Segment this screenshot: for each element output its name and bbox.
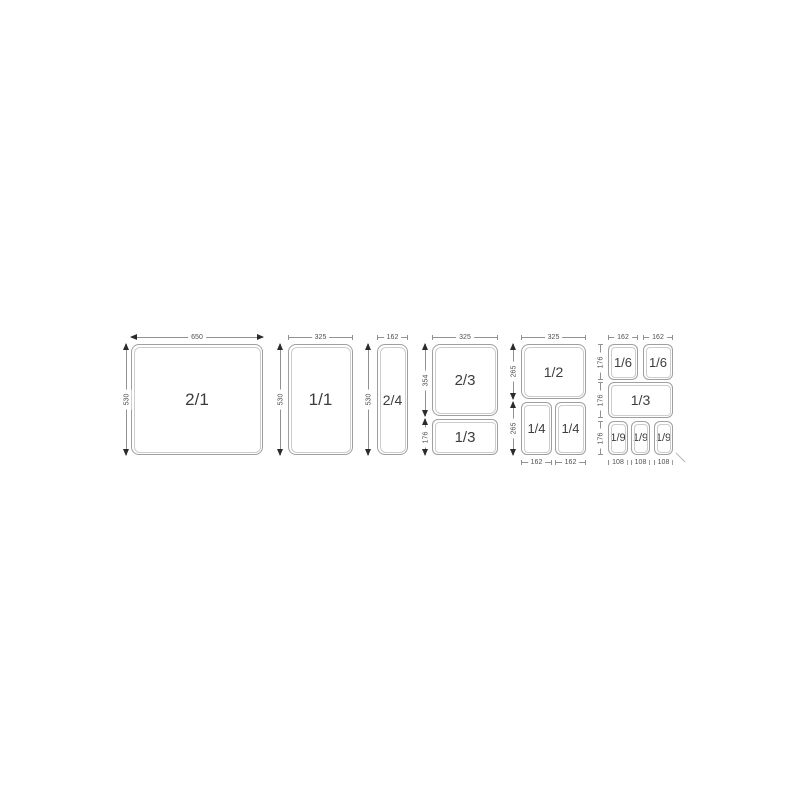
dim-label: 530 — [276, 390, 285, 410]
arrow-up-icon — [422, 418, 428, 425]
dim-tick — [598, 421, 603, 422]
arrow-down-icon — [422, 410, 428, 417]
dim-tick — [643, 335, 644, 340]
dim-label: 530 — [122, 390, 131, 410]
dim-label: 108 — [609, 459, 627, 467]
dim-width-108-a: 108 — [608, 462, 628, 463]
pan-1-1: 1/1 — [288, 344, 353, 455]
dim-label: 108 — [632, 459, 650, 467]
dim-height-265-b: 265 — [513, 402, 514, 455]
arrow-up-icon — [422, 343, 428, 350]
dim-width-162-g6a: 162 — [608, 337, 638, 338]
pan-2-1: 2/1 — [131, 344, 263, 455]
pan-label: 1/3 — [631, 392, 650, 408]
pan-label: 1/4 — [527, 421, 545, 436]
pan-label: 1/2 — [544, 364, 563, 380]
dim-tick — [497, 335, 498, 340]
pan-label: 1/4 — [561, 421, 579, 436]
pan-label: 1/6 — [614, 355, 632, 370]
dim-label: 176 — [596, 390, 605, 410]
dim-tick — [352, 335, 353, 340]
pan-1-6: 1/6 — [643, 344, 673, 380]
dim-label: 354 — [421, 370, 430, 390]
dim-label: 162 — [384, 334, 402, 342]
dim-height-176-g6b: 176 — [600, 382, 601, 418]
dim-label: 265 — [509, 362, 518, 382]
dim-label: 162 — [562, 459, 580, 467]
pan-1-4: 1/4 — [521, 402, 552, 455]
arrow-down-icon — [510, 449, 516, 456]
pan-1-9: 1/9 — [631, 421, 650, 455]
pan-label: 1/6 — [649, 355, 667, 370]
arrow-down-icon — [510, 393, 516, 400]
pan-2-4: 2/4 — [377, 344, 408, 455]
dim-height-530-g1: 530 — [126, 344, 127, 455]
arrow-up-icon — [510, 343, 516, 350]
dim-width-650: 650 — [131, 337, 263, 338]
dim-label: 530 — [364, 390, 373, 410]
dim-height-176-g4: 176 — [425, 419, 426, 455]
dim-label: 162 — [649, 334, 667, 342]
pan-label: 1/1 — [309, 390, 333, 410]
dim-tick — [672, 335, 673, 340]
pan-label: 1/3 — [455, 429, 476, 446]
pan-1-3: 1/3 — [608, 382, 673, 418]
dim-width-325-g5: 325 — [521, 337, 586, 338]
dim-width-162-g5b: 162 — [555, 462, 586, 463]
dim-label: 176 — [421, 427, 430, 447]
arrow-down-icon — [277, 449, 283, 456]
pan-label: 1/9 — [610, 432, 625, 444]
dim-label: 176 — [596, 428, 605, 448]
dim-tick — [598, 344, 603, 345]
pan-2-3: 2/3 — [432, 344, 498, 416]
dim-tick — [377, 335, 378, 340]
dim-tick — [432, 335, 433, 340]
pan-label: 2/1 — [185, 390, 209, 410]
dim-label: 650 — [188, 334, 206, 342]
dim-label: 325 — [456, 334, 474, 342]
pan-1-2: 1/2 — [521, 344, 586, 399]
pan-label: 2/3 — [455, 372, 476, 389]
dim-tick — [585, 335, 586, 340]
dim-tick — [608, 335, 609, 340]
arrow-down-icon — [422, 449, 428, 456]
dim-width-162-g6b: 162 — [643, 337, 673, 338]
dim-tick — [288, 335, 289, 340]
dim-width-325-g4: 325 — [432, 337, 498, 338]
dim-tick — [598, 417, 603, 418]
dim-tick — [521, 335, 522, 340]
dim-width-108-c: 108 — [654, 462, 673, 463]
arrow-up-icon — [123, 343, 129, 350]
dim-tick — [555, 460, 556, 465]
pan-label: 1/9 — [633, 432, 648, 444]
dim-label: 176 — [596, 352, 605, 372]
arrow-right-icon — [257, 334, 264, 340]
pan-1-3: 1/3 — [432, 419, 498, 455]
gastronorm-size-diagram: 650 530 2/1 325 530 1/1 162 530 2/4 32 — [0, 0, 800, 800]
dim-tick — [637, 335, 638, 340]
dim-tick — [407, 335, 408, 340]
arrow-up-icon — [510, 401, 516, 408]
dim-width-162-g5a: 162 — [521, 462, 552, 463]
dim-height-176-g6a: 176 — [600, 344, 601, 380]
arrow-left-icon — [130, 334, 137, 340]
dim-label: 265 — [509, 419, 518, 439]
dim-tick — [585, 460, 586, 465]
dim-tick — [551, 460, 552, 465]
dim-width-108-b: 108 — [631, 462, 650, 463]
dim-label: 325 — [312, 334, 330, 342]
dim-tick — [627, 460, 628, 465]
pan-label: 2/4 — [383, 392, 402, 408]
corner-mark — [676, 453, 686, 463]
dim-height-176-g6c: 176 — [600, 421, 601, 455]
dim-label: 325 — [545, 334, 563, 342]
arrow-up-icon — [365, 343, 371, 350]
pan-1-4: 1/4 — [555, 402, 586, 455]
dim-label: 162 — [614, 334, 632, 342]
dim-height-265-a: 265 — [513, 344, 514, 399]
arrow-down-icon — [365, 449, 371, 456]
dim-label: 108 — [655, 459, 673, 467]
pan-label: 1/9 — [656, 432, 671, 444]
dim-width-162-g3: 162 — [377, 337, 408, 338]
dim-tick — [521, 460, 522, 465]
arrow-up-icon — [277, 343, 283, 350]
pan-1-9: 1/9 — [654, 421, 673, 455]
pan-1-6: 1/6 — [608, 344, 638, 380]
dim-height-530-g3: 530 — [368, 344, 369, 455]
dim-label: 162 — [528, 459, 546, 467]
arrow-down-icon — [123, 449, 129, 456]
dim-tick — [598, 382, 603, 383]
dim-tick — [598, 379, 603, 380]
dim-height-354: 354 — [425, 344, 426, 416]
dim-width-325-g2: 325 — [288, 337, 353, 338]
pan-1-9: 1/9 — [608, 421, 628, 455]
dim-height-530-g2: 530 — [280, 344, 281, 455]
dim-tick — [598, 454, 603, 455]
